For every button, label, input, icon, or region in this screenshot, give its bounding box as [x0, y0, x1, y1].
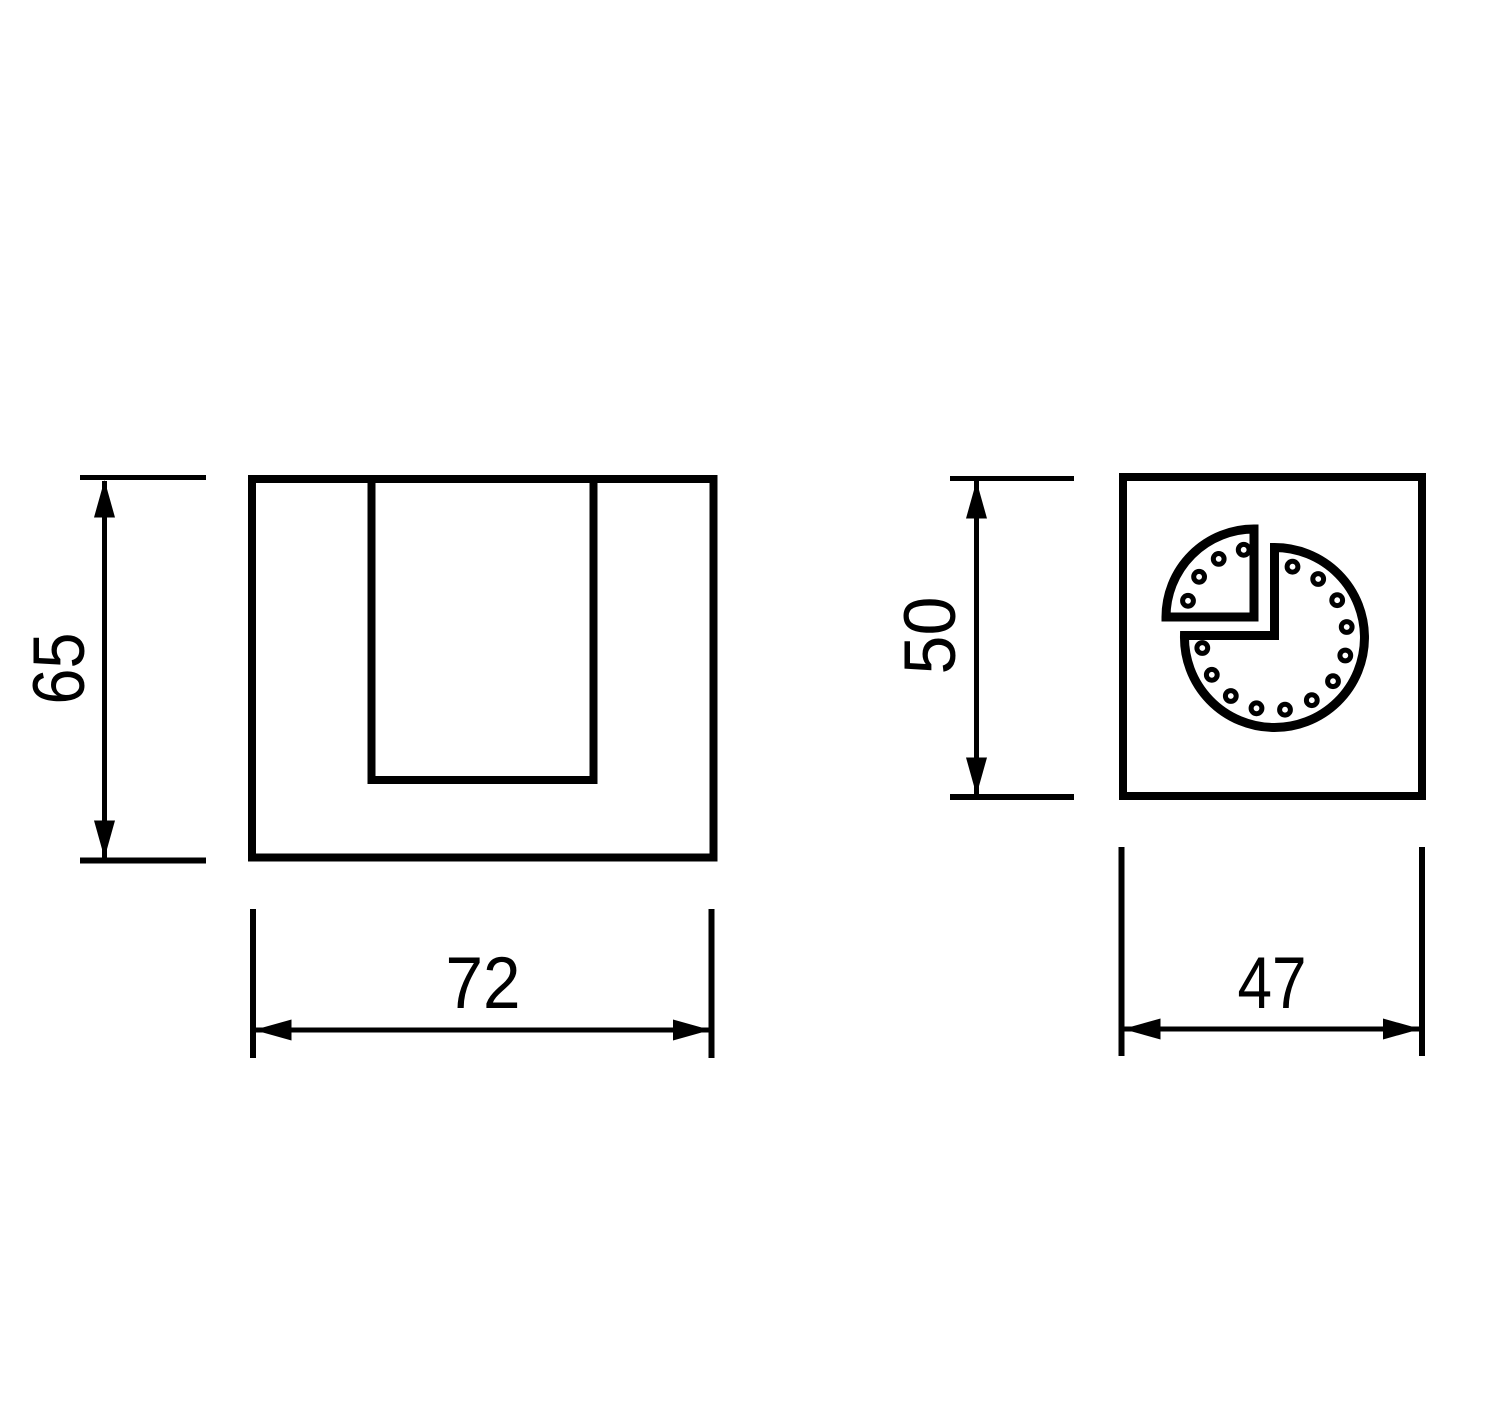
svg-text:72: 72	[446, 943, 521, 1024]
svg-text:50: 50	[890, 597, 971, 675]
svg-text:65: 65	[19, 633, 100, 705]
svg-text:47: 47	[1238, 943, 1307, 1024]
